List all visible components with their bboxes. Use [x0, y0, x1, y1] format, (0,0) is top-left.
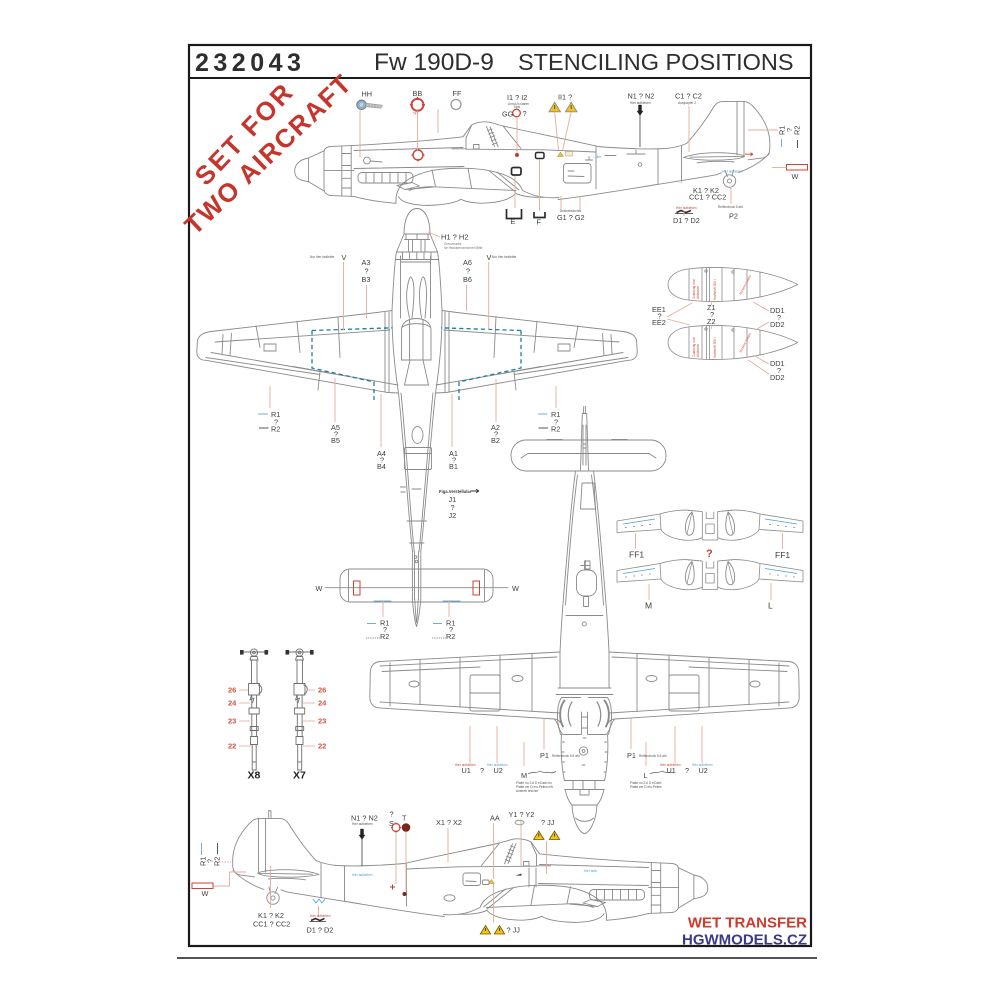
svg-text:232043: 232043	[195, 49, 305, 77]
svg-text:B2: B2	[491, 436, 500, 445]
svg-text:22: 22	[318, 742, 326, 751]
svg-text:V: V	[487, 253, 492, 262]
svg-text:Ablassen: Ablassen	[696, 344, 700, 357]
svg-text:W: W	[316, 584, 323, 593]
svg-text:P2: P2	[729, 212, 738, 221]
svg-text:FF: FF	[453, 89, 462, 98]
svg-text:Ablassen: Ablassen	[696, 286, 700, 299]
svg-text:BB: BB	[413, 89, 423, 98]
svg-text:Figa.Verstellular: Figa.Verstellular	[439, 489, 472, 494]
svg-text:?: ?	[523, 109, 527, 118]
svg-text:U1: U1	[667, 766, 676, 775]
svg-text:Anstrebstecher: Anstrebstecher	[560, 209, 582, 213]
svg-text:Tk: Tk	[413, 112, 417, 116]
svg-text:Hier aufkleben: Hier aufkleben	[352, 873, 373, 877]
svg-text:Hier aufkleben: Hier aufkleben	[310, 914, 331, 918]
svg-text:Hier aufkleben: Hier aufkleben	[352, 822, 373, 826]
svg-text:G1 ? G2: G1 ? G2	[557, 213, 585, 222]
svg-text:HH: HH	[362, 90, 373, 99]
svg-text:B1: B1	[449, 462, 458, 471]
svg-text:Vorsicht Gefahr: Vorsicht Gefahr	[738, 331, 752, 353]
svg-text:M: M	[645, 601, 652, 611]
svg-text:Reifendruck 5.5 atü: Reifendruck 5.5 atü	[639, 754, 667, 758]
svg-text:FF1: FF1	[629, 550, 644, 560]
svg-text:Hier aufkleben: Hier aufkleben	[487, 763, 508, 767]
svg-text:Hier aufkleben: Hier aufkleben	[630, 101, 651, 105]
svg-text:II1 ?: II1 ?	[558, 93, 572, 102]
svg-text:U2: U2	[494, 766, 503, 775]
svg-text:→|: →|	[678, 180, 682, 184]
svg-text:Hier aufkleben: Hier aufkleben	[692, 763, 713, 767]
svg-text:C1 ? C2: C1 ? C2	[675, 92, 702, 101]
svg-text:X1 ? X2: X1 ? X2	[436, 818, 462, 827]
svg-text:F: F	[537, 218, 542, 227]
svg-text:B6: B6	[463, 275, 472, 284]
svg-text:D1 ? D2: D1 ? D2	[307, 926, 334, 935]
svg-text:CC1 ? CC2: CC1 ? CC2	[689, 193, 726, 202]
svg-text:R2: R2	[551, 425, 560, 434]
svg-text:W: W	[202, 889, 209, 898]
svg-text:CC1 ? CC2: CC1 ? CC2	[253, 920, 290, 929]
svg-text:22: 22	[228, 742, 236, 751]
svg-text:Z2: Z2	[707, 317, 716, 326]
svg-text:DD2: DD2	[770, 373, 785, 382]
svg-text:B3: B3	[362, 275, 371, 284]
svg-text:P1: P1	[627, 751, 636, 760]
svg-text:Reifendruck 5.5 atü: Reifendruck 5.5 atü	[552, 754, 580, 758]
svg-text:D1 ? D2: D1 ? D2	[673, 216, 700, 225]
svg-text:Nur hier beklebte: Nur hier beklebte	[310, 255, 335, 259]
svg-text:STENCILING POSITIONS: STENCILING POSITIONS	[518, 49, 794, 75]
svg-text:Y1 ? Y2: Y1 ? Y2	[509, 810, 535, 819]
svg-text:EE2: EE2	[652, 318, 666, 327]
svg-text:R2: R2	[446, 632, 455, 641]
svg-text:WET TRANSFER: WET TRANSFER	[688, 915, 807, 932]
svg-text:Hier aufkleben: Hier aufkleben	[455, 763, 476, 767]
svg-text:24: 24	[318, 699, 327, 708]
svg-text:Hier aufk.: Hier aufk.	[584, 869, 598, 873]
svg-text:GG: GG	[502, 110, 514, 119]
svg-text:?: ?	[390, 810, 394, 819]
svg-text:23: 23	[228, 717, 236, 726]
svg-text:L: L	[644, 771, 648, 780]
svg-text:I1 ? I2: I1 ? I2	[507, 93, 527, 102]
svg-text:T: T	[402, 814, 407, 823]
svg-text:U2: U2	[699, 766, 708, 775]
svg-text:R2: R2	[380, 632, 389, 641]
svg-text:23: 23	[318, 717, 326, 726]
svg-text:HGWMODELS.CZ: HGWMODELS.CZ	[682, 932, 807, 949]
svg-text:Hier aufkleben: Hier aufkleben	[660, 763, 681, 767]
svg-text:Nur hier beklebte: Nur hier beklebte	[492, 255, 517, 259]
svg-text:J2: J2	[449, 511, 457, 520]
svg-text:Kraftstoff 300 l: Kraftstoff 300 l	[713, 279, 717, 300]
svg-text:W: W	[512, 584, 519, 593]
svg-text:Kraftstoff 300 l: Kraftstoff 300 l	[713, 337, 717, 358]
svg-text:H1 ? H2: H1 ? H2	[441, 233, 469, 242]
svg-text:W: W	[792, 172, 799, 181]
svg-text:R2: R2	[213, 857, 222, 866]
svg-text:Vorsicht Gefahr: Vorsicht Gefahr	[738, 273, 752, 295]
svg-text:X7: X7	[293, 770, 306, 782]
svg-text:R2: R2	[271, 425, 280, 434]
svg-text:B4: B4	[377, 462, 386, 471]
svg-text:FF1: FF1	[775, 550, 790, 560]
svg-text:S: S	[389, 819, 394, 828]
svg-text:N1 ? N2: N1 ? N2	[628, 92, 655, 101]
svg-text:26: 26	[228, 686, 236, 695]
svg-text:Fw 190D-9: Fw 190D-9	[374, 49, 494, 76]
svg-text:Autopapier 2: Autopapier 2	[678, 101, 696, 105]
svg-text:? JJ: ? JJ	[507, 926, 521, 935]
svg-text:P1: P1	[540, 751, 549, 760]
svg-text:L: L	[768, 601, 773, 611]
svg-text:26: 26	[318, 686, 326, 695]
svg-text:R2: R2	[793, 126, 802, 135]
svg-text:→Hier: →Hier	[592, 155, 602, 159]
svg-text:für Heckkennzeichnet Mitte: für Heckkennzeichnet Mitte	[444, 246, 483, 250]
svg-text:AA: AA	[490, 814, 500, 823]
svg-text:?: ?	[480, 766, 484, 775]
svg-text:M: M	[521, 771, 527, 780]
svg-text:Tank: Tank	[514, 105, 521, 109]
svg-text:?: ?	[706, 548, 713, 560]
svg-text:24: 24	[228, 699, 237, 708]
svg-text:Hier aufkleben: Hier aufkleben	[722, 170, 743, 174]
svg-text:DD2: DD2	[770, 320, 785, 329]
svg-text:B5: B5	[331, 436, 340, 445]
svg-text:V: V	[342, 253, 347, 262]
svg-text:Reifendruck 5 atü: Reifendruck 5 atü	[718, 205, 743, 209]
svg-text:Anstreb tescher: Anstreb tescher	[516, 789, 539, 793]
svg-text:X8: X8	[248, 770, 261, 782]
svg-text:Hier aufkleben: Hier aufkleben	[676, 206, 697, 210]
svg-text:?: ?	[685, 766, 689, 775]
svg-text:U1: U1	[462, 766, 471, 775]
svg-text:? JJ: ? JJ	[541, 818, 555, 827]
svg-text:Platte ver D ein-Peiles: Platte ver D ein-Peiles	[630, 785, 662, 789]
svg-text:E: E	[511, 217, 516, 226]
